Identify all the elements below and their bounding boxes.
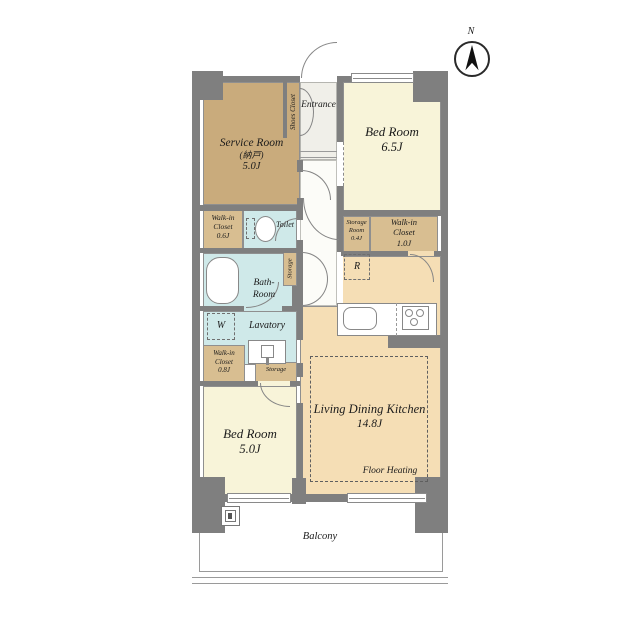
wall-counter-block [388, 335, 441, 348]
wic-06-l1: Walk-in [204, 213, 242, 222]
entrance-label: Entrance [298, 100, 339, 112]
service-room-label: Service Room (納戸) 5.0J [203, 136, 300, 174]
wic-08-l1: Walk-in [204, 349, 244, 358]
lavatory-label: Lavatory [236, 320, 298, 332]
wall-hallstorage-stub [292, 286, 300, 306]
ldk-label: Living Dining Kitchen 14.8J [311, 402, 428, 431]
small-storage-label: Storage [255, 366, 297, 374]
wic-06-l2: Closet [204, 222, 242, 231]
toilet-tank [246, 218, 255, 239]
hall-storage-text: Storage [287, 258, 294, 278]
storage-04-label: Storage Room 0.4J [344, 219, 369, 243]
stove-burner-3 [410, 318, 418, 326]
pillar-top-right [413, 71, 448, 102]
service-room-sub: (納戸) [203, 150, 300, 161]
wic-10-l1: Walk-in [372, 217, 436, 227]
bedroom-65-size: 6.5J [343, 140, 441, 155]
toilet-label: Toilet [272, 220, 298, 230]
wic-08-label: Walk-in Closet 0.8J [204, 349, 244, 375]
washbasin-tap [266, 358, 269, 365]
balcony-outer-line-2 [192, 583, 448, 584]
shoes-closet-text: Shoes Closet [289, 94, 297, 130]
service-room-name: Service Room [203, 136, 300, 150]
washbasin-bowl [261, 345, 274, 358]
service-room-size: 5.0J [203, 161, 300, 174]
wall-below-bed65 [341, 210, 441, 216]
escape-hatch-glyph [228, 513, 232, 519]
wall-left [192, 76, 200, 477]
window-bed65-top [351, 73, 414, 83]
compass-north-label: N [456, 26, 486, 38]
north-arrow-icon [461, 45, 483, 73]
refrigerator-box: R [344, 254, 370, 280]
floorplan-canvas: N [0, 0, 640, 640]
bedroom-65-label: Bed Room 6.5J [343, 124, 441, 155]
wic-08-l2: Closet [204, 358, 244, 367]
window-ldk-balcony [347, 493, 427, 503]
wall-main-4 [297, 363, 303, 377]
storage-04-l3: 0.4J [344, 235, 369, 243]
bedroom-65-name: Bed Room [343, 124, 441, 140]
window-bed50-balcony [227, 493, 291, 503]
entrance-step-line-1 [300, 151, 337, 152]
ldk-size: 14.8J [311, 417, 428, 431]
bedroom-50-name: Bed Room [203, 426, 297, 442]
ldk-name: Living Dining Kitchen [311, 402, 428, 417]
wic-10-label: Walk-in Closet 1.0J [372, 217, 436, 248]
bathtub [206, 257, 239, 304]
kitchen-counter-divider [396, 303, 398, 336]
wic-10-l3: 1.0J [372, 238, 436, 248]
compass-icon [454, 41, 490, 77]
floor-heating-label: Floor Heating [352, 466, 428, 478]
pillar-top-left [192, 71, 223, 100]
stove-burner-2 [416, 309, 424, 317]
bedroom-50-label: Bed Room 5.0J [203, 426, 297, 457]
bath-l2: Room [238, 290, 290, 302]
storage-04-l1: Storage [344, 219, 369, 227]
wic-06-l3: 0.6J [204, 231, 242, 240]
bedroom-50-size: 5.0J [203, 442, 297, 457]
hall-storage-label: Storage [283, 251, 297, 285]
washer-label: W [217, 320, 225, 332]
storage-04-l2: Room [344, 227, 369, 235]
wic-10-l2: Closet [372, 227, 436, 237]
wall-below-service [199, 205, 300, 211]
balcony-label: Balcony [199, 531, 441, 544]
washer-box: W [207, 313, 235, 340]
pillar-bottom-right [415, 477, 448, 533]
door-entrance [301, 42, 337, 78]
wall-main-5 [297, 403, 303, 496]
stove-burner-1 [405, 309, 413, 317]
wall-right [441, 76, 448, 477]
balcony-outer-line-1 [192, 577, 448, 578]
shoes-closet-label: Shoes Closet [285, 86, 300, 138]
refrigerator-label: R [354, 261, 360, 273]
wall-main-2 [297, 198, 303, 220]
kitchen-sink [343, 307, 377, 330]
wic-06-label: Walk-in Closet 0.6J [204, 213, 242, 240]
wic-08-l3: 0.8J [204, 366, 244, 375]
entrance-step-line-2 [300, 157, 337, 158]
